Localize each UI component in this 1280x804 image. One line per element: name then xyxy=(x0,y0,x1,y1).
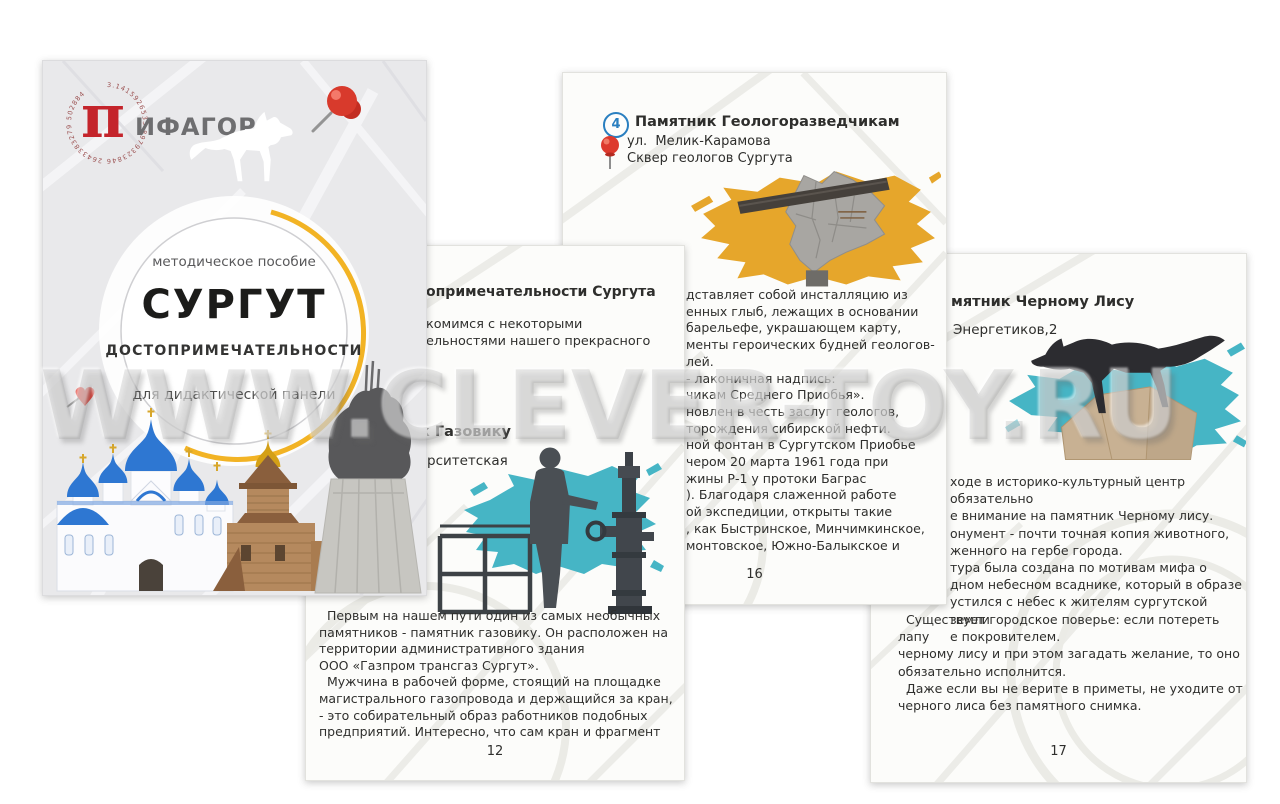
fox-silhouette-icon xyxy=(185,105,303,193)
gasman-header-fragment: опримечательности Сургута xyxy=(426,284,656,300)
cathedral-photo xyxy=(57,408,233,591)
pushpin-icon xyxy=(305,77,369,141)
blackfox-title-fragment: мятник Черному Лису xyxy=(951,294,1134,310)
page-number: 17 xyxy=(871,744,1246,759)
gasman-title-fragment: к Газовику xyxy=(420,424,511,440)
gasman-monument-photo xyxy=(430,440,672,620)
landmarks-montage xyxy=(43,355,426,595)
cover-title: СУРГУТ xyxy=(104,283,364,327)
geologists-title: Памятник Геологоразведчикам xyxy=(635,114,900,130)
geologists-body: дставляет собой инсталляцию из енных глы… xyxy=(686,287,935,554)
black-fox-monument-photo xyxy=(999,330,1246,464)
cover-page: 3.1415926535 8979323846 2643383279 50288… xyxy=(42,60,427,596)
product-photo: мятник Черному Лису Энергетиков,2 ходе в… xyxy=(0,0,1280,804)
geologists-monument-photo xyxy=(687,161,941,295)
location-pin-icon xyxy=(597,133,623,171)
founders-monument-photo xyxy=(315,361,421,593)
geologists-address-1: ул. Мелик-Карамова xyxy=(627,134,771,149)
blackfox-body-full: Существует городское поверье: если потер… xyxy=(898,611,1246,714)
series-label: методическое пособие xyxy=(104,254,364,270)
page-number: 12 xyxy=(306,744,684,759)
gasman-body: Первым на нашем пути один из самых необы… xyxy=(319,608,673,741)
pi-symbol: π xyxy=(81,87,125,147)
gasman-intro: комимся с некоторыми ельностями нашего п… xyxy=(426,316,650,350)
